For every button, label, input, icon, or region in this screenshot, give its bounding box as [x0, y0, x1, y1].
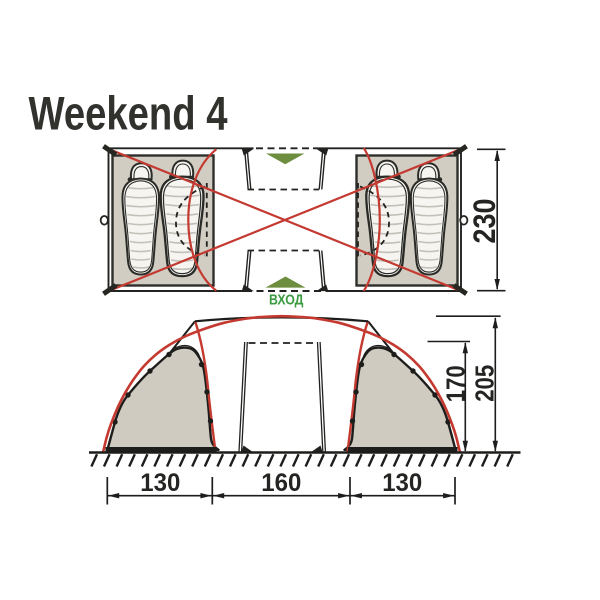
svg-text:230: 230 [466, 199, 502, 244]
svg-text:ВХОД: ВХОД [269, 292, 304, 309]
svg-text:160: 160 [261, 469, 301, 497]
svg-text:130: 130 [382, 469, 422, 497]
svg-text:130: 130 [140, 469, 180, 497]
svg-text:205: 205 [472, 365, 500, 402]
svg-text:170: 170 [443, 365, 471, 402]
svg-text:Weekend 4: Weekend 4 [29, 87, 228, 140]
